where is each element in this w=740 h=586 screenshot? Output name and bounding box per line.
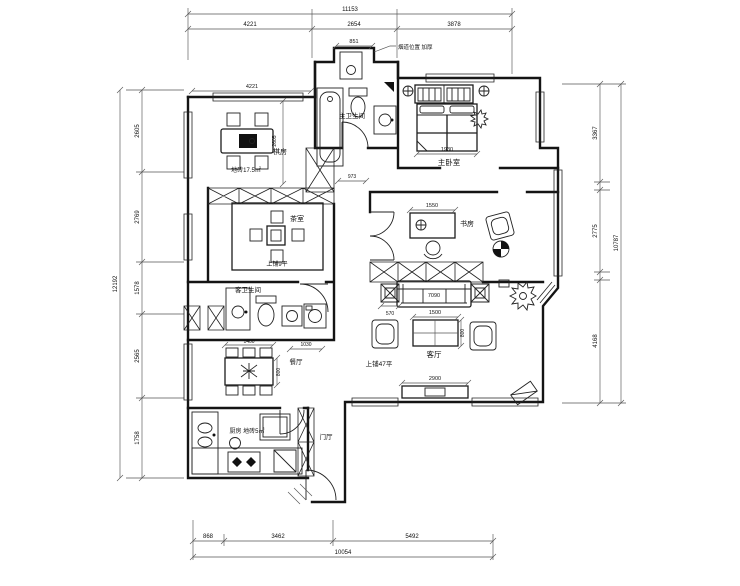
right-dimension-chain: 3367 2775 4168 10787 (562, 81, 626, 406)
dim-left-seg5: 1758 (135, 431, 141, 445)
dim-right-seg2: 2775 (593, 224, 599, 238)
dining-area: 1400 800 餐厅 (222, 339, 303, 395)
master-bedroom: 1930 主卧室 (403, 85, 489, 167)
tatami-platform (232, 203, 323, 270)
room-label-foyer: 门厅 (320, 432, 334, 441)
toilet (258, 304, 274, 326)
washing-machine (304, 304, 326, 328)
hallway: 973 (335, 174, 369, 184)
dim-left-seg2: 2769 (135, 210, 141, 224)
dim-right-seg1: 3367 (593, 126, 599, 140)
basin (379, 114, 391, 126)
beam-hatch-study (370, 262, 483, 282)
dim-dining-w: 1400 (243, 339, 254, 345)
fan-icon (493, 241, 509, 257)
desk (410, 213, 455, 238)
chair (255, 113, 268, 126)
dim-hall: 973 (348, 174, 357, 180)
toilet-tank (256, 296, 276, 303)
dim-right-total: 10787 (614, 234, 620, 251)
dim-game-height: 2605 (272, 135, 278, 146)
sink-bowl (198, 423, 212, 433)
interior-walls (188, 62, 558, 408)
bottom-dimension-chain: 868 3462 5492 10054 (190, 520, 496, 560)
dim-coffee-w: 1500 (429, 310, 441, 316)
dim-bottom-total: 10054 (335, 550, 352, 556)
dim-desk: 1550 (426, 203, 438, 209)
foyer: 门厅 (320, 432, 334, 441)
armchair (485, 211, 514, 240)
living-room: 7090 570 1500 800 客厅 上铺47平 2900 (366, 280, 538, 405)
floor-cushion (271, 250, 283, 262)
tea-room: 茶室 上铺9平 (232, 203, 323, 270)
dim-top-seg3: 3878 (447, 22, 461, 28)
centerpiece (241, 363, 257, 379)
sink (282, 306, 302, 326)
dim-right-seg3: 4168 (593, 334, 599, 348)
ceiling-target-icon (479, 86, 489, 96)
beam-hatch-tea (208, 188, 334, 204)
floor-cushion (271, 211, 283, 223)
room-label-study: 书房 (460, 219, 474, 228)
plan-note: 烟道位置 加厚 (398, 43, 433, 51)
vanity (226, 288, 250, 330)
corner-shelf (384, 82, 394, 92)
dim-top-total: 11153 (342, 7, 358, 13)
chair (226, 386, 238, 395)
dim-left-total: 12192 (113, 275, 119, 292)
chair (260, 386, 272, 395)
pillow (420, 106, 444, 113)
room-label-master-bed: 主卧室 (438, 157, 461, 167)
pillow (450, 106, 474, 113)
side-table (471, 284, 489, 302)
dim-side-table: 570 (386, 311, 395, 317)
dim-niche: 851 (349, 39, 358, 45)
counter (192, 412, 218, 474)
dim-game-width: 4221 (246, 84, 258, 90)
ceiling-target-icon (403, 86, 413, 96)
dim-top-seg2: 2654 (347, 22, 361, 28)
chair (243, 386, 255, 395)
left-dimension-chain: 2605 2769 1578 2565 1758 12192 (113, 87, 184, 481)
corner-cabinet (274, 450, 296, 472)
area-label-living: 上铺47平 (366, 359, 393, 368)
dim-top-seg1: 4221 (243, 22, 257, 28)
guest-bathroom: 客卫生间 1030 (208, 285, 326, 352)
room-label-living: 客厅 (427, 349, 442, 359)
foyer-column-strip (298, 408, 314, 476)
room-label-game: 棋房 (273, 147, 287, 156)
chair (243, 348, 255, 357)
dim-coffee-h: 800 (460, 329, 466, 338)
room-label-tea: 茶室 (290, 214, 304, 223)
room-label-guest-bath: 客卫生间 (235, 285, 261, 294)
dim-tv: 2900 (429, 376, 441, 382)
armchair (372, 320, 398, 348)
dim-bottom-seg1: 868 (203, 534, 214, 540)
kitchen: 厨房 地砖5㎡ (192, 412, 302, 474)
chair (227, 113, 240, 126)
armchair (470, 322, 496, 350)
study: 1550 书房 (407, 203, 515, 259)
area-label-game: 地砖17.5㎡ (231, 166, 261, 174)
dim-bottom-seg3: 5492 (405, 534, 419, 540)
chair (260, 348, 272, 357)
dim-dining-h: 800 (276, 368, 282, 377)
dim-sofa: 7090 (428, 293, 440, 299)
floor-cushion (250, 229, 262, 241)
dim-bottom-seg2: 3462 (271, 534, 285, 540)
plant-icon (510, 282, 536, 310)
game-room: 4221 2605 棋房 地砖17.5㎡ (189, 84, 314, 187)
floor-plan-canvas: 11153 4221 2654 3878 868 3462 5492 10054… (0, 0, 740, 586)
sink-bowl (198, 437, 212, 447)
left-wall-column (184, 306, 200, 330)
desk-chair (426, 241, 440, 255)
dim-left-seg1: 2605 (135, 124, 141, 138)
windows (184, 74, 562, 406)
dim-bath-pass: 1030 (300, 342, 311, 348)
side-table (381, 284, 399, 302)
dim-left-seg4: 2565 (135, 349, 141, 363)
dim-left-seg3: 1578 (135, 281, 141, 295)
basin (232, 306, 244, 318)
bath-column (208, 306, 224, 330)
room-label-kitchen: 厨房 地砖5㎡ (229, 427, 264, 435)
room-label-master-bath: 主卫生间 (339, 111, 365, 120)
floor-plan-sheet: 11153 4221 2654 3878 868 3462 5492 10054… (0, 0, 740, 586)
dim-bed: 1930 (441, 147, 453, 153)
room-label-dining: 餐厅 (290, 357, 304, 366)
fridge (260, 414, 290, 440)
tea-table (267, 226, 285, 245)
toilet-tank (349, 88, 367, 96)
floor-cushion (292, 229, 304, 241)
area-label-tea: 上铺9平 (266, 260, 287, 268)
chair (226, 348, 238, 357)
burner (232, 457, 256, 467)
